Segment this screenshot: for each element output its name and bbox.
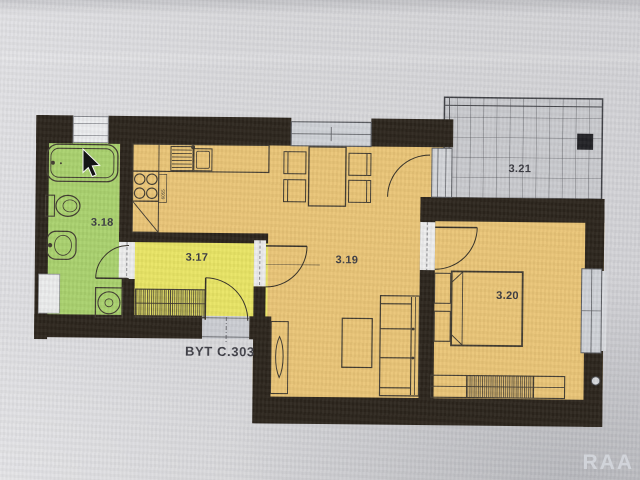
kitchen-dimension-label: 6055 bbox=[161, 189, 166, 200]
shaft-niche bbox=[38, 274, 59, 313]
room-label-terrace: 3.21 bbox=[508, 163, 531, 175]
room-label-hallway: 3.17 bbox=[186, 252, 209, 264]
drain-icon bbox=[591, 377, 599, 385]
watermark: RAA bbox=[583, 451, 635, 475]
room-label-bedroom: 3.20 bbox=[496, 290, 519, 302]
living-room-window bbox=[291, 122, 371, 147]
floor-plan: 6055 bbox=[0, 0, 640, 480]
photo-of-screen: 6055 bbox=[0, 0, 640, 480]
apartment-label: BYT C.303 bbox=[185, 344, 255, 360]
bedroom-window bbox=[581, 269, 607, 353]
terrace-pillar bbox=[577, 134, 593, 150]
balcony-door-panel bbox=[432, 148, 453, 197]
room-label-bathroom: 3.18 bbox=[91, 217, 114, 229]
hallway-wardrobe bbox=[135, 289, 205, 318]
bathroom-window bbox=[73, 116, 108, 142]
room-label-living: 3.19 bbox=[336, 254, 359, 266]
entrance-threshold bbox=[202, 316, 249, 344]
floor-plan-drawing: 6055 bbox=[0, 0, 640, 480]
terrace bbox=[444, 97, 603, 200]
